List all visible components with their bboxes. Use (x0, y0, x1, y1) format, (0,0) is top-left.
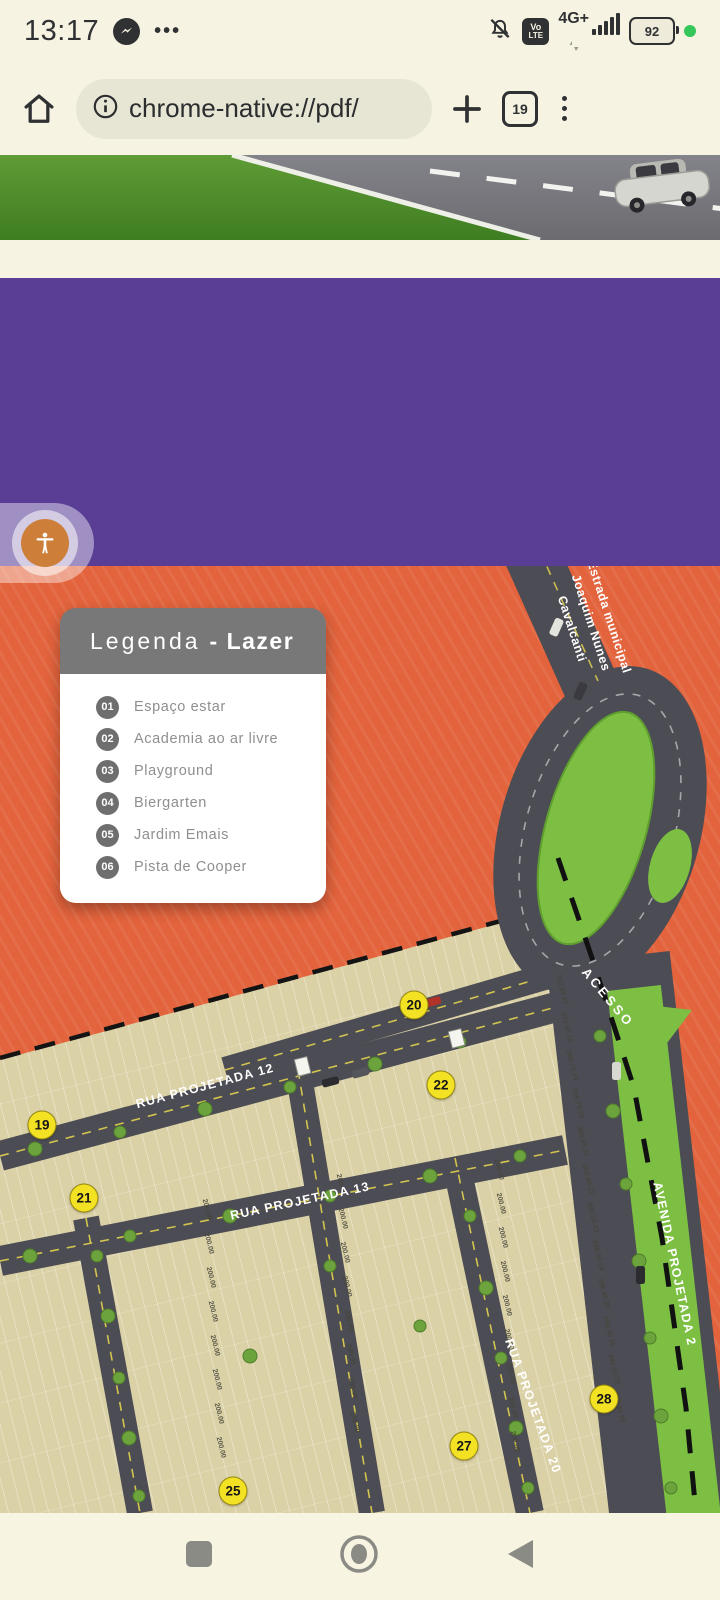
status-bar: 13:17 ••• VoLTE 4G+ (0, 0, 720, 62)
legend-item-06: 06Pista de Cooper (60, 851, 326, 883)
map-marker-28: 28 (590, 1385, 619, 1414)
pdf-map-page[interactable]: Legenda - Lazer 01Espaço estar02Academia… (0, 566, 720, 1513)
page-info-icon[interactable] (92, 93, 119, 125)
accessibility-person-icon[interactable] (21, 519, 69, 567)
browser-toolbar: chrome-native://pdf/ 19 (0, 62, 720, 155)
legend-item-04: 04Biergarten (60, 787, 326, 819)
volte-badge: VoLTE (522, 18, 549, 45)
legend-item-03: 03Playground (60, 755, 326, 787)
legend-card: Legenda - Lazer 01Espaço estar02Academia… (60, 608, 326, 903)
privacy-green-dot (684, 25, 696, 37)
legend-title-bold: - Lazer (210, 628, 295, 655)
map-marker-21: 21 (70, 1184, 99, 1213)
home-button[interactable] (20, 90, 58, 128)
new-tab-button[interactable] (450, 92, 484, 126)
more-notifications-icon: ••• (154, 20, 181, 43)
phone-screen: 13:17 ••• VoLTE 4G+ (0, 0, 720, 1600)
map-marker-25: 25 (219, 1477, 248, 1506)
car-illustration (612, 155, 711, 215)
url-text[interactable]: chrome-native://pdf/ (129, 93, 359, 124)
map-marker-19: 19 (28, 1111, 57, 1140)
clock: 13:17 (24, 15, 99, 48)
browser-menu-button[interactable] (562, 96, 567, 121)
data-arrows-icon (569, 40, 579, 52)
legend-item-01: 01Espaço estar (60, 691, 326, 723)
legend-items: 01Espaço estar02Academia ao ar livre03Pl… (60, 674, 326, 903)
messenger-notification-icon (113, 18, 140, 45)
map-marker-22: 22 (427, 1071, 456, 1100)
home-nav-button[interactable] (338, 1533, 380, 1580)
legend-title-light: Legenda (90, 628, 201, 655)
battery-indicator: 92 (629, 17, 675, 45)
pdf-banner: ESCOLHA AQUI (0, 278, 720, 566)
map-marker-20: 20 (400, 991, 429, 1020)
map-marker-27: 27 (450, 1432, 479, 1461)
recents-button[interactable] (185, 1540, 213, 1573)
android-nav-bar (0, 1513, 720, 1600)
legend-item-05: 05Jardim Emais (60, 819, 326, 851)
bell-muted-icon (487, 16, 513, 47)
tab-switcher-button[interactable]: 19 (502, 91, 538, 127)
network-signal: 4G+ (558, 10, 620, 52)
legend-item-02: 02Academia ao ar livre (60, 723, 326, 755)
url-bar[interactable]: chrome-native://pdf/ (76, 79, 432, 139)
legend-header: Legenda - Lazer (60, 608, 326, 674)
pdf-photo-strip (0, 155, 720, 240)
photo-art (0, 155, 720, 240)
network-type-label: 4G+ (558, 10, 589, 28)
back-button[interactable] (505, 1538, 535, 1575)
signal-bars-icon (592, 13, 620, 35)
accessibility-fab[interactable] (0, 503, 94, 583)
